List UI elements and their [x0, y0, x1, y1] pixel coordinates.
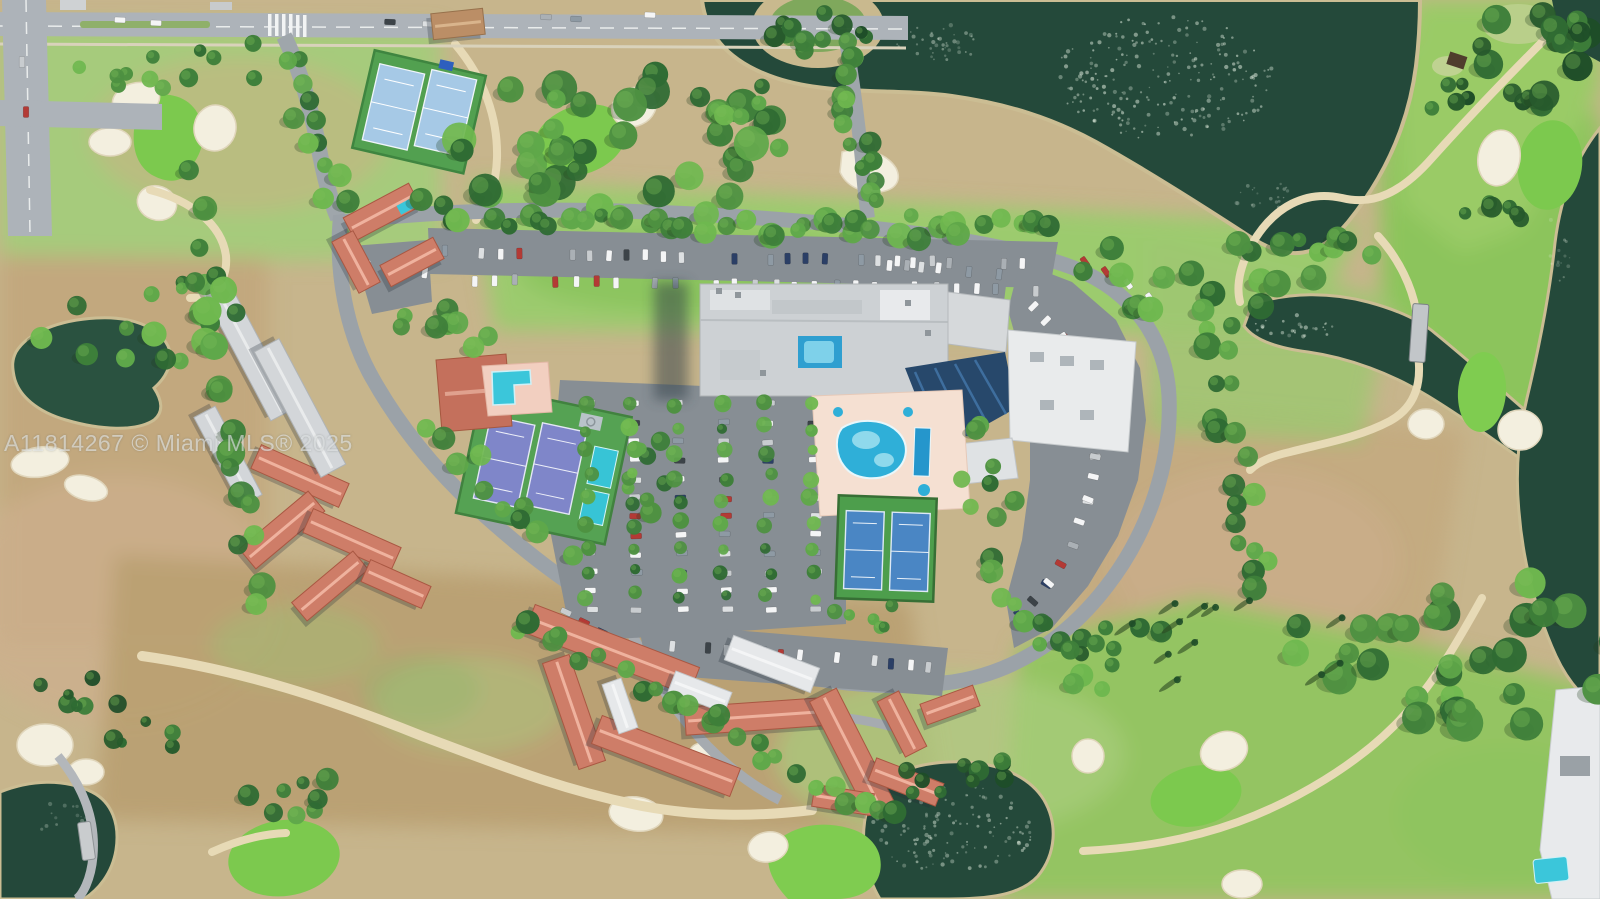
house-roof	[210, 2, 232, 10]
building-shadow	[654, 282, 688, 400]
rooftop-pool-water	[804, 341, 834, 363]
pond-southwest	[0, 782, 117, 899]
street-median	[80, 21, 210, 28]
lagoon-pool	[837, 421, 906, 478]
putting-green	[768, 825, 880, 899]
spa	[903, 407, 913, 417]
estate-roof-section	[1560, 756, 1590, 776]
house-roof	[60, 0, 86, 10]
pool-shallow	[852, 431, 880, 449]
lap-pool	[913, 428, 931, 477]
cart-bridge	[1409, 304, 1429, 363]
tennis-center	[835, 495, 937, 601]
white-building-east	[1008, 330, 1136, 452]
pool-shallow	[874, 453, 894, 467]
spa	[833, 407, 843, 417]
estate-pool	[1533, 856, 1569, 883]
clubhouse-annex	[948, 292, 1010, 352]
spa	[918, 484, 930, 496]
aerial-photo-golf-community: A11814267 © Miami MLS® 2025	[0, 0, 1600, 899]
